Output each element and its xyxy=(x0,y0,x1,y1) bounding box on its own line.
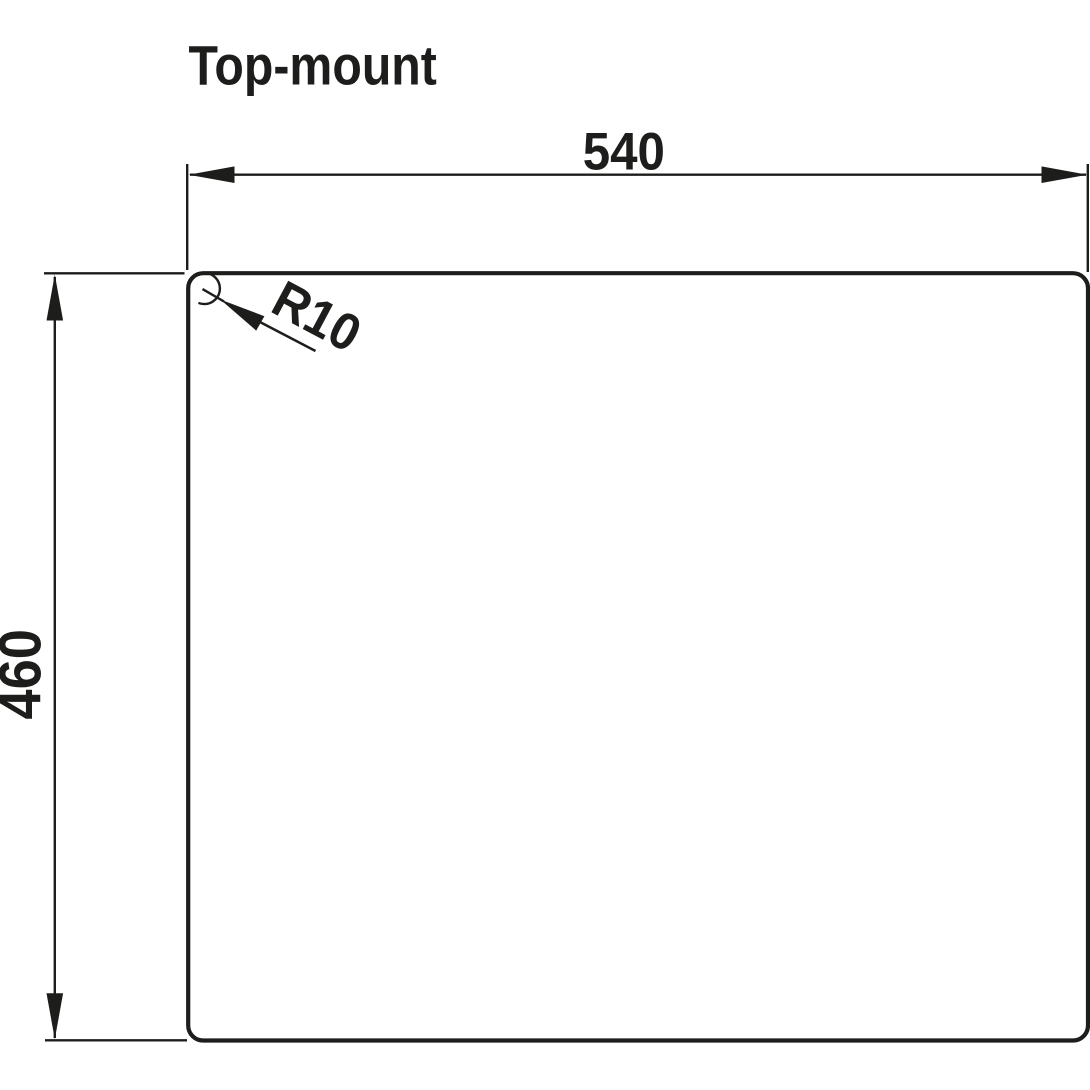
svg-text:540: 540 xyxy=(583,122,665,181)
svg-text:460: 460 xyxy=(0,629,54,720)
svg-text:Top-mount: Top-mount xyxy=(189,35,437,97)
